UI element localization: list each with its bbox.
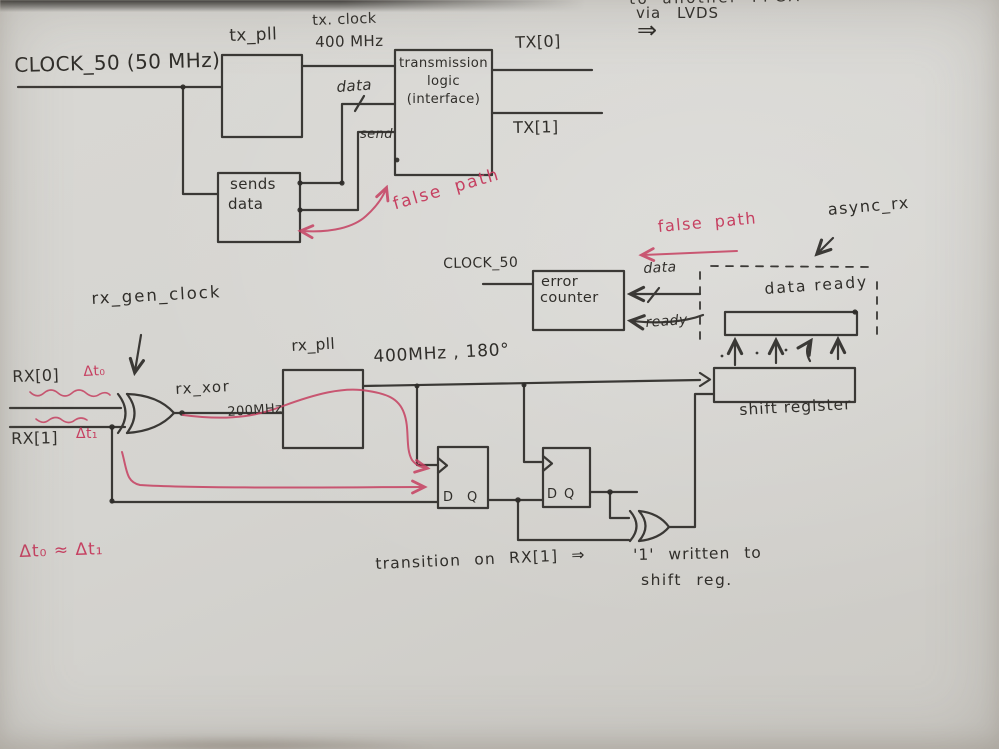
- sends-data-label-1: sends: [230, 176, 276, 193]
- transmission-logic-line3: (interface): [407, 91, 481, 109]
- ff1-q-label: Q: [467, 491, 478, 506]
- data-label-mid: data: [643, 259, 677, 277]
- sends-data-label-2: data: [228, 196, 263, 213]
- destination-arrow: ⇒: [637, 17, 658, 45]
- dt-equation-label: Δt₀ ≈ Δt₁: [19, 540, 104, 562]
- ready-label: ready: [645, 312, 688, 331]
- transmission-logic-label: transmission logic (interface): [396, 55, 491, 110]
- ff2-clock-wire: [524, 384, 543, 462]
- ff2-q-label: Q: [564, 488, 575, 503]
- rx1-label: RX[1]: [11, 429, 58, 448]
- transmission-logic-line1: transmission: [399, 55, 488, 73]
- clock50-mid-label: CLOCK_50: [443, 255, 518, 272]
- tx-pll-box: [222, 55, 302, 137]
- rx0-delay-squiggle: [30, 390, 110, 396]
- data-ready-box: [725, 312, 857, 335]
- rx-pll-label: rx_pll: [291, 336, 336, 356]
- false-path-arrow-mid: [643, 251, 737, 255]
- rx-clock-wire: [363, 373, 710, 386]
- send-label: send: [360, 128, 393, 143]
- dt0-label: Δt₀: [83, 363, 106, 380]
- error-counter-label-1: error: [541, 274, 578, 291]
- serial-in-wire: [669, 394, 713, 527]
- rx0-label: RX[0]: [12, 366, 59, 386]
- tx-clock-label: tx. clock: [312, 11, 377, 30]
- data-label-top: data: [336, 77, 373, 97]
- tx-freq-label: 400 MHz: [315, 33, 384, 51]
- rx1-delay-squiggle: [36, 418, 87, 423]
- transmission-logic-line2: logic: [427, 73, 460, 91]
- rx-pll-box: [283, 370, 363, 448]
- rx-xor-gate: [118, 394, 174, 433]
- rx-xor-label: rx_xor: [175, 378, 231, 398]
- rx-gen-clock-arrow: [135, 335, 141, 371]
- async-pointer-arrow: [818, 238, 833, 253]
- output-xor-gate: [630, 511, 669, 541]
- tx1-label: TX[1]: [513, 118, 559, 137]
- shift-to-ready-arrows: [735, 341, 838, 365]
- rx1-branch-wire: [112, 427, 438, 502]
- error-counter-label-2: counter: [540, 290, 599, 307]
- dt1-label: Δt₁: [76, 426, 98, 442]
- photo-of-hand-drawn-schematic: CLOCK_50 (50 MHz) tx_pll tx. clock 400 M…: [0, 0, 999, 749]
- tx0-label: TX[0]: [515, 32, 561, 52]
- xor2-upper-wire: [610, 492, 629, 518]
- diagram-wires: [0, 0, 999, 749]
- ff1-clock-wire: [417, 385, 438, 465]
- false-path-trace-rx: [183, 390, 426, 468]
- note-line2: '1' written to: [633, 545, 762, 565]
- tx-pll-label: tx_pll: [229, 25, 278, 46]
- ff2-d-label: D: [547, 488, 557, 503]
- note-line3: shift reg.: [641, 572, 733, 590]
- rx1-delay-arrow: [122, 452, 423, 488]
- ff1-d-label: D: [443, 491, 453, 506]
- clock50-wire: [18, 87, 222, 194]
